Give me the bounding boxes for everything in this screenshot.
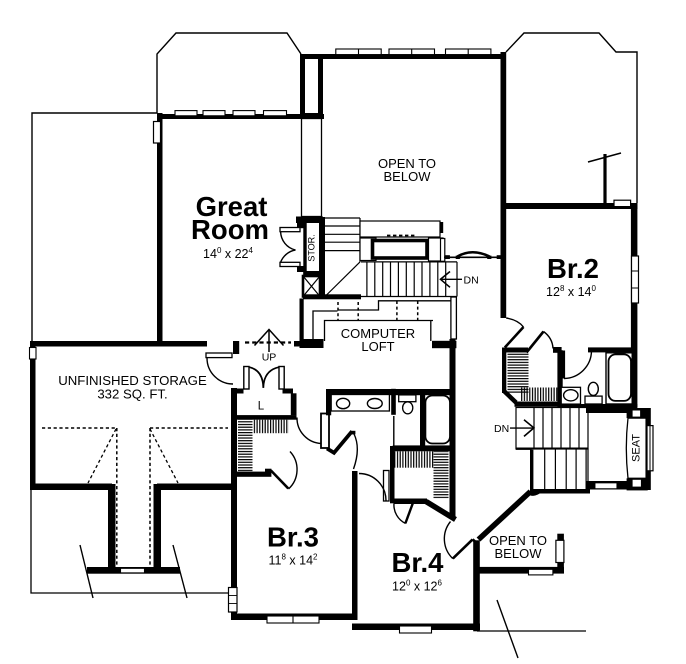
svg-text:SEAT: SEAT: [631, 434, 643, 462]
svg-text:Br.2: Br.2: [547, 253, 599, 284]
svg-text:STOR.: STOR.: [307, 234, 317, 261]
svg-text:L: L: [258, 401, 265, 413]
svg-text:128 x 140: 128 x 140: [546, 284, 596, 299]
svg-text:BELOW: BELOW: [384, 169, 432, 184]
svg-text:LOFT: LOFT: [361, 339, 394, 354]
svg-text:332 SQ. FT.: 332 SQ. FT.: [97, 386, 167, 401]
svg-text:Br.3: Br.3: [267, 522, 319, 553]
svg-text:BELOW: BELOW: [495, 546, 543, 561]
svg-text:DN: DN: [494, 423, 509, 435]
svg-text:UP: UP: [262, 352, 277, 364]
svg-text:118 x 142: 118 x 142: [269, 553, 319, 568]
svg-text:Room: Room: [191, 214, 269, 245]
svg-text:DN: DN: [464, 275, 479, 287]
svg-text:140 x 224: 140 x 224: [203, 246, 253, 261]
svg-text:120 x 126: 120 x 126: [392, 579, 442, 594]
svg-text:Br.4: Br.4: [392, 547, 445, 578]
